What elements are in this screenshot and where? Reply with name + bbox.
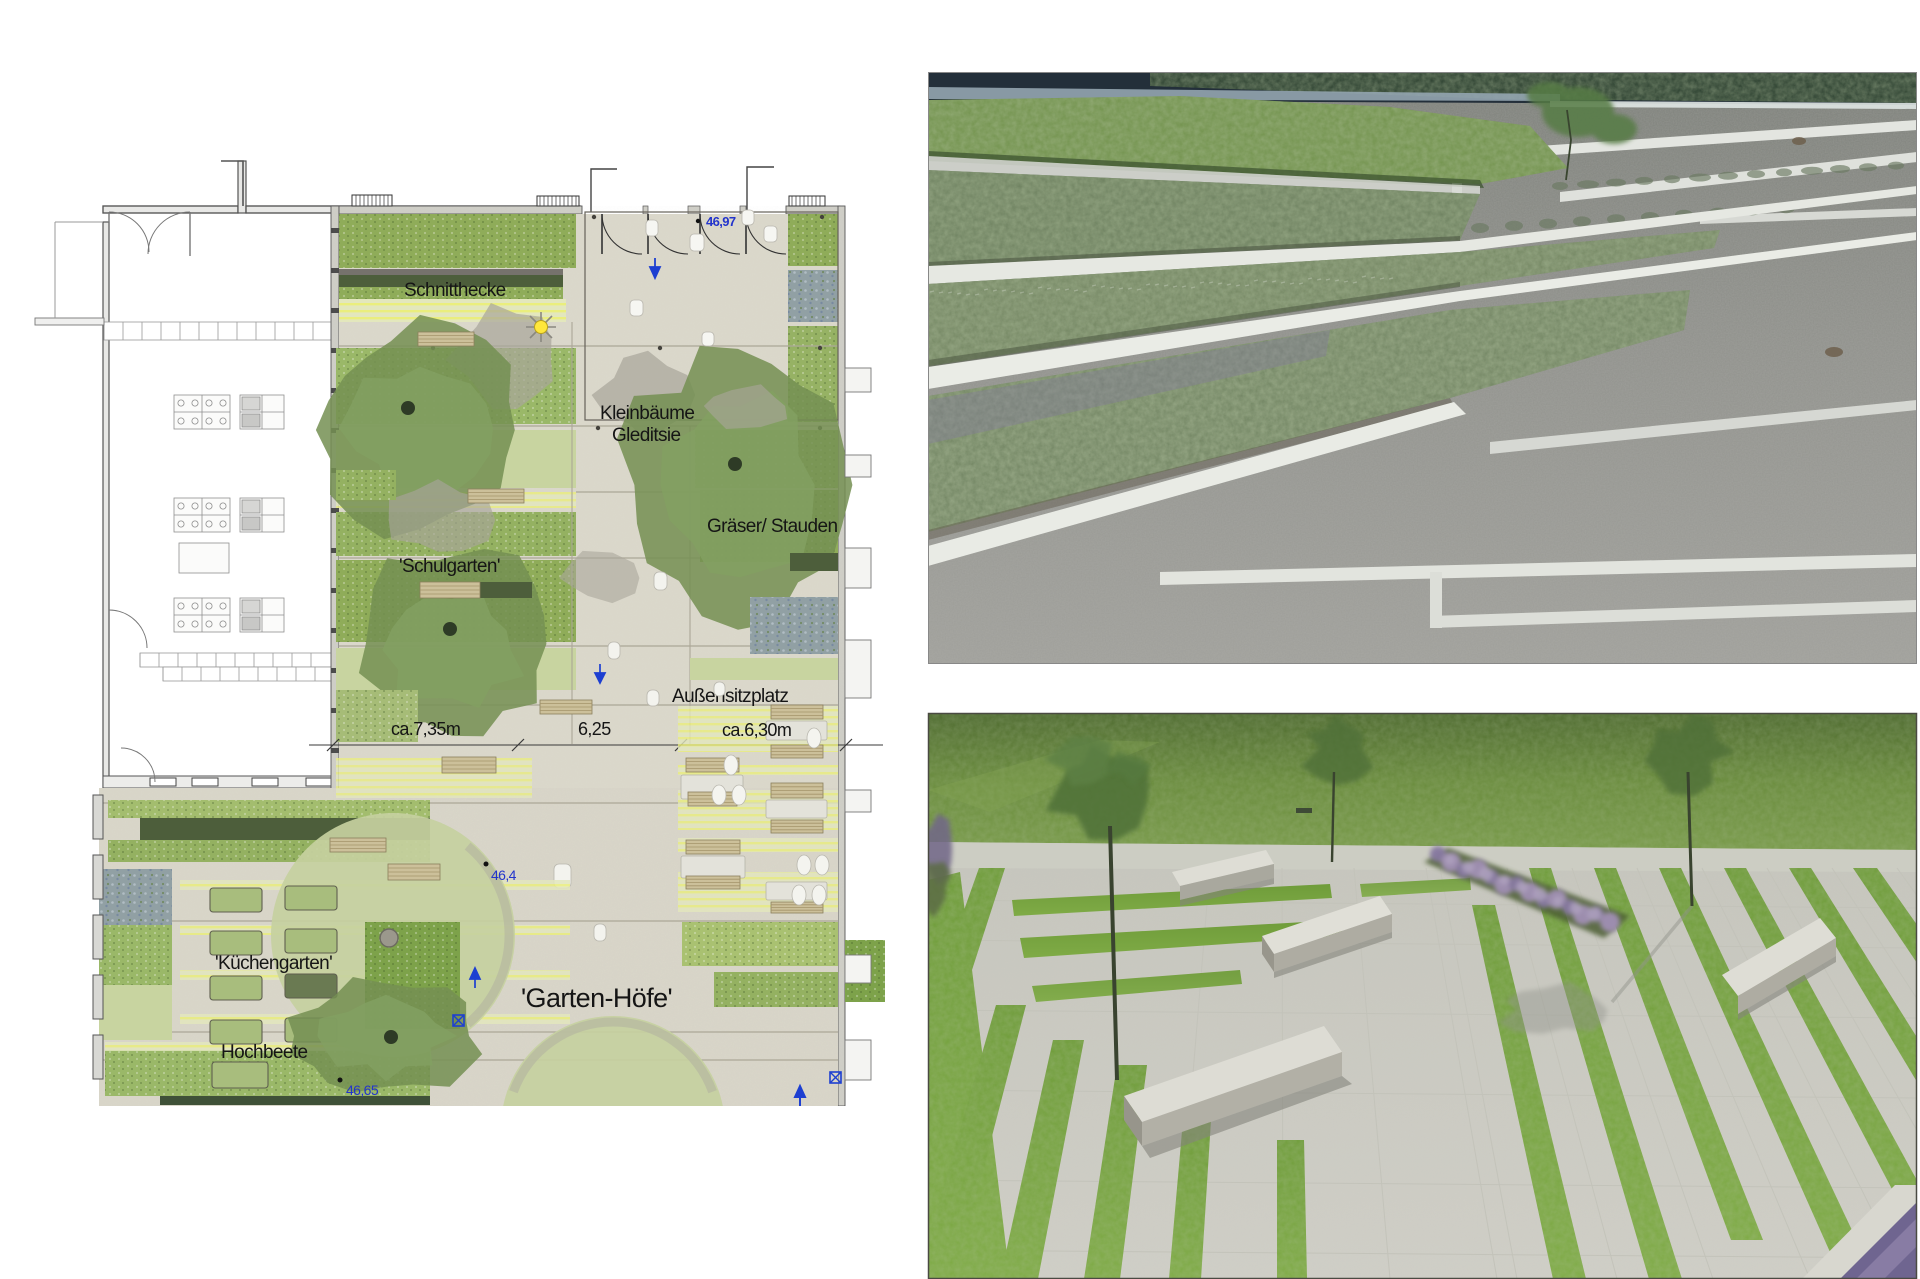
svg-text:'Küchengarten': 'Küchengarten' xyxy=(215,953,332,974)
svg-text:Schnitthecke: Schnitthecke xyxy=(404,280,506,301)
svg-text:Gleditsie: Gleditsie xyxy=(612,425,681,446)
svg-text:'Garten-Höfe': 'Garten-Höfe' xyxy=(521,983,672,1013)
svg-text:46,97: 46,97 xyxy=(706,214,736,229)
svg-text:ca.6,30m: ca.6,30m xyxy=(722,720,791,740)
svg-text:Gräser/ Stauden: Gräser/ Stauden xyxy=(707,516,837,537)
svg-text:6,25: 6,25 xyxy=(578,719,611,739)
svg-text:Hochbeete: Hochbeete xyxy=(221,1042,308,1063)
svg-text:ca.7,35m: ca.7,35m xyxy=(391,719,460,739)
svg-text:Kleinbäume: Kleinbäume xyxy=(600,403,694,424)
svg-text:46,65: 46,65 xyxy=(346,1082,379,1098)
svg-text:46,4: 46,4 xyxy=(491,867,517,883)
svg-text:'Schulgarten': 'Schulgarten' xyxy=(399,556,500,577)
svg-text:Außensitzplatz: Außensitzplatz xyxy=(672,686,788,707)
